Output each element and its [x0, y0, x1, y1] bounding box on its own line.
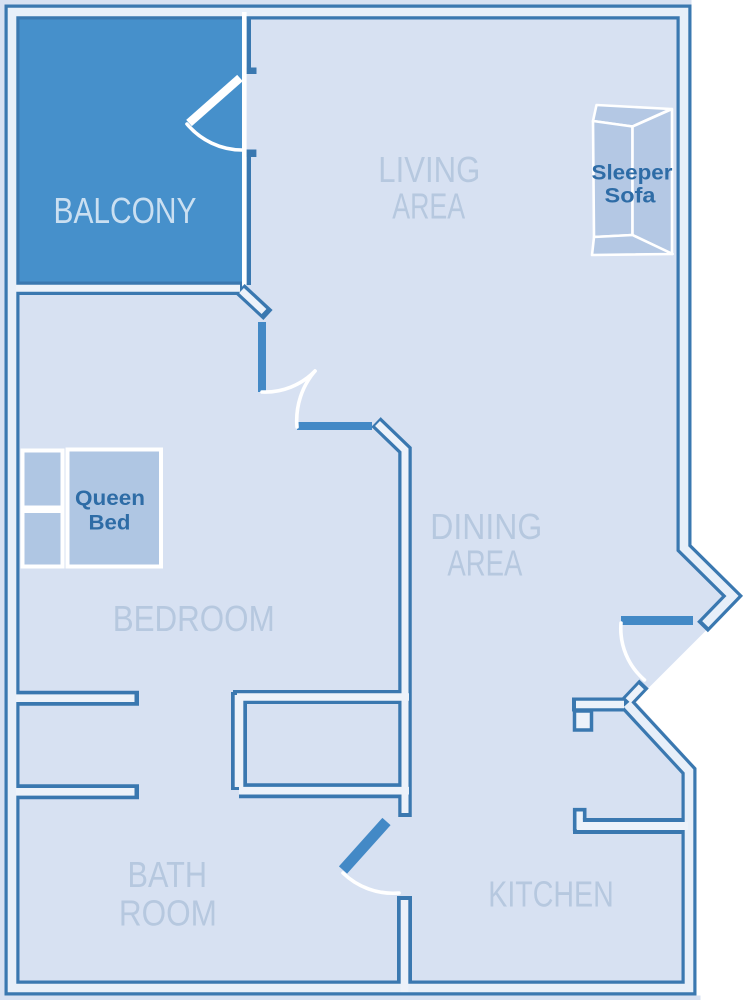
- svg-text:BATH: BATH: [128, 854, 208, 895]
- svg-text:AREA: AREA: [447, 543, 522, 584]
- svg-text:Bed: Bed: [89, 512, 131, 535]
- svg-text:ROOM: ROOM: [119, 893, 217, 934]
- svg-text:BEDROOM: BEDROOM: [113, 598, 275, 639]
- svg-text:Sofa: Sofa: [605, 185, 656, 208]
- svg-text:Queen: Queen: [75, 487, 145, 510]
- svg-text:KITCHEN: KITCHEN: [488, 874, 614, 915]
- svg-text:AREA: AREA: [392, 186, 465, 227]
- svg-text:BALCONY: BALCONY: [54, 190, 197, 231]
- svg-text:DINING: DINING: [430, 506, 542, 547]
- svg-text:Sleeper: Sleeper: [592, 162, 673, 185]
- svg-text:LIVING: LIVING: [378, 149, 480, 190]
